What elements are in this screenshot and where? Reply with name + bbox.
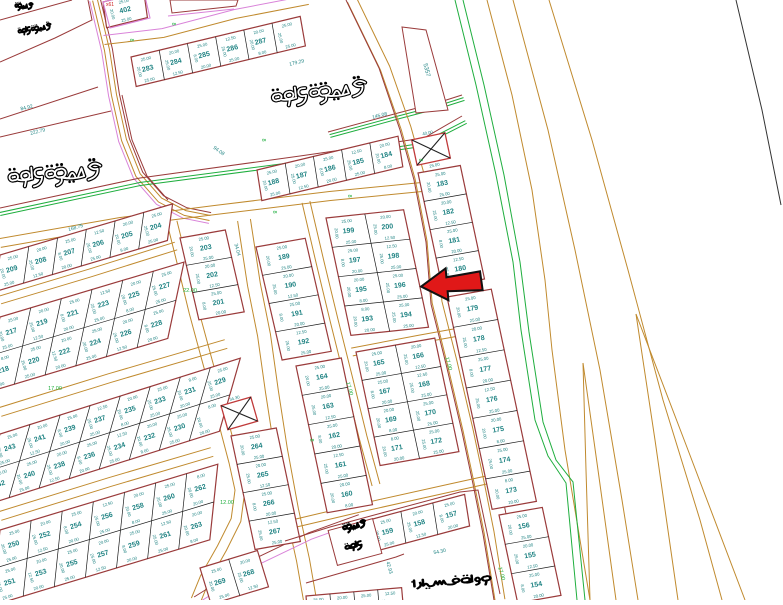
svg-text:8: 8: [170, 22, 176, 25]
svg-text:8: 8: [417, 158, 423, 161]
svg-text:195: 195: [355, 286, 367, 294]
svg-text:20.00: 20.00: [337, 595, 349, 600]
svg-text:x61: x61: [106, 2, 114, 8]
svg-text:200: 200: [381, 223, 393, 231]
svg-text:8.00: 8.00: [340, 258, 346, 267]
svg-text:198: 198: [387, 252, 399, 260]
svg-text:8: 8: [346, 194, 352, 197]
svg-text:196: 196: [394, 282, 406, 290]
svg-text:8: 8: [308, 438, 314, 441]
svg-text:197: 197: [349, 257, 361, 265]
svg-text:25.00: 25.00: [313, 597, 325, 600]
svg-text:194: 194: [400, 311, 412, 319]
svg-text:199: 199: [342, 227, 354, 235]
svg-text:12.00: 12.00: [220, 500, 234, 506]
svg-text:17.00: 17.00: [48, 386, 62, 392]
svg-text:12.50: 12.50: [385, 590, 397, 596]
svg-text:193: 193: [361, 315, 373, 323]
svg-text:8.00: 8.00: [361, 306, 370, 312]
svg-text:8.00: 8.00: [359, 297, 368, 303]
svg-text:22.00: 22.00: [183, 288, 197, 294]
svg-text:8: 8: [260, 138, 266, 141]
svg-text:8: 8: [271, 210, 277, 213]
svg-text:8: 8: [128, 38, 134, 41]
svg-text:25.00: 25.00: [361, 592, 373, 598]
